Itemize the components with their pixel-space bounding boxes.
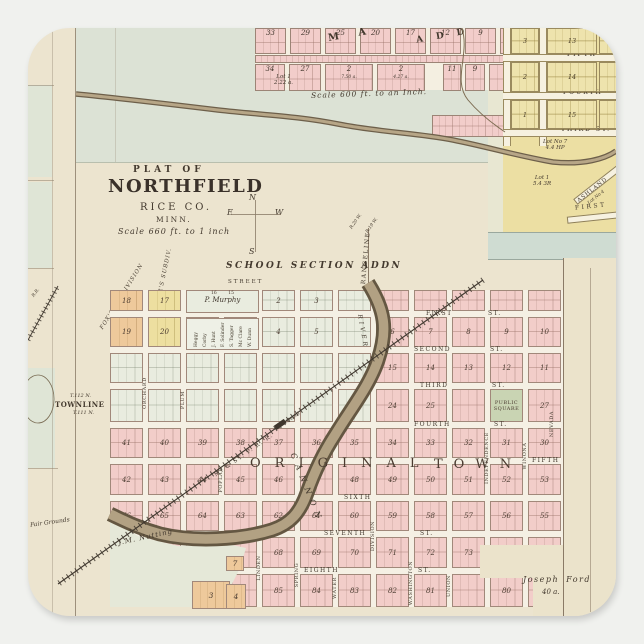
north-block: 9 xyxy=(465,64,485,91)
block-cell xyxy=(300,389,333,422)
compass-ns-line xyxy=(255,200,256,252)
owner-name: Corby xyxy=(203,333,208,347)
map-title: NORTHFIELD xyxy=(108,178,263,197)
east-plat: FIFTH FOURTH THIRD ST. Lot No 74.4 HP Lo… xyxy=(503,28,616,232)
owner-name: Heggy xyxy=(194,332,199,347)
north-plat-row1: 33292520171293 xyxy=(255,28,531,54)
block-cell: 55 xyxy=(528,501,561,531)
block-cell: 63 xyxy=(224,501,257,531)
block-cell: 4 xyxy=(262,317,295,347)
block-cell: 39 xyxy=(186,428,219,458)
product-photo: 33292520171293 342727.50 a.24.27 a.1192 … xyxy=(0,0,644,644)
block-cell xyxy=(338,290,371,311)
block-cell xyxy=(452,389,485,422)
east-block-partial xyxy=(599,100,616,129)
east-block-partial xyxy=(599,28,616,54)
left-field-3 xyxy=(28,368,55,468)
owner-name: S. Tagger xyxy=(230,325,235,347)
first-street-band xyxy=(567,211,616,223)
east-block-partial xyxy=(599,62,616,92)
block-cell: 3 xyxy=(300,290,333,311)
north-block: 27.50 a. xyxy=(325,64,373,91)
owner-name: J. Hunt xyxy=(212,331,217,347)
block-cell: 32 xyxy=(452,428,485,458)
field-line xyxy=(115,28,116,162)
block-cell xyxy=(300,353,333,383)
ford-acres-label: 40 a. xyxy=(542,589,560,596)
block-cell: 24 xyxy=(376,389,409,422)
block-cell: 33 xyxy=(414,428,447,458)
north-plat-row2: 342727.50 a.24.27 a.1192 xyxy=(255,64,531,91)
range-west-label: R.20 W. xyxy=(350,214,364,231)
street-label-orchard: ORCHARD xyxy=(142,377,148,409)
murphy-block: 16 15 P. Murphy xyxy=(186,290,259,313)
block-cell xyxy=(186,353,219,383)
east-block: 14 xyxy=(547,62,597,92)
block-cell: 69 xyxy=(300,537,333,568)
block-cell: 43 xyxy=(148,464,181,495)
block-cell: 6 xyxy=(376,317,409,347)
title-scale: Scale 660 ft. to 1 inch xyxy=(118,228,230,236)
block-cell xyxy=(224,389,257,422)
block-cell: 34 xyxy=(376,428,409,458)
east-lot-a: Lot No 74.4 HP xyxy=(543,140,567,152)
street-label-fourth: FOURTH xyxy=(414,421,451,428)
block-cell: 15 xyxy=(376,353,409,383)
east-block: 1 xyxy=(511,100,539,129)
street-label-division: DIVISION xyxy=(370,521,376,551)
street-label-seventh: SEVENTH xyxy=(324,530,366,537)
compass-ew-line xyxy=(231,214,281,215)
north-block: 27 xyxy=(289,64,321,91)
street-label-sixth: SIXTH xyxy=(344,494,372,501)
street-label-third: THIRD xyxy=(420,382,448,389)
block-cell xyxy=(338,353,371,383)
townline-label: TOWNLINE xyxy=(55,401,105,408)
compass-s: S xyxy=(249,248,254,256)
block-cell: 85 xyxy=(262,574,295,607)
block-cell: 19 xyxy=(110,317,143,347)
title-county: RICE CO. xyxy=(140,203,212,214)
north-plat-lot-label: Lot 12.22 a. xyxy=(274,75,293,87)
block-cell xyxy=(528,290,561,311)
block-cell: 62 xyxy=(262,501,295,531)
block-cell: 20 xyxy=(148,317,181,347)
block-cell: 53 xyxy=(528,464,561,495)
north-block: 33 xyxy=(255,28,286,54)
block-cell: 8 xyxy=(452,317,485,347)
block-cell: 41 xyxy=(110,428,143,458)
block-cell: 5 xyxy=(300,317,333,347)
north-plat-sublots xyxy=(255,55,521,63)
block-3-orange: 3 xyxy=(192,581,230,609)
range-east-label: R.19 W. xyxy=(366,218,380,235)
street-suffix: ST. xyxy=(420,530,434,537)
street-label-washington: WASHINGTON xyxy=(408,561,414,605)
block-cell: 14 xyxy=(414,353,447,383)
block-cell: 36 xyxy=(300,428,333,458)
block-cell xyxy=(224,353,257,383)
street-suffix: ST. xyxy=(492,382,506,389)
block-cell xyxy=(452,290,485,311)
east-block: 2 xyxy=(511,62,539,92)
east-block: 15 xyxy=(547,100,597,129)
block-cell: 11 xyxy=(528,353,561,383)
ford-label: Joseph Ford xyxy=(523,576,591,584)
block-cell: 7 xyxy=(414,317,447,347)
street-top-label: STREET xyxy=(228,280,263,286)
block-cell: 9 xyxy=(490,317,523,347)
block-cell: 84 xyxy=(300,574,333,607)
title-kicker: PLAT OF xyxy=(133,166,205,175)
block-cell xyxy=(262,353,295,383)
block-cell: 58 xyxy=(414,501,447,531)
block-cell: 44 xyxy=(186,464,219,495)
block-4-orange: 4 xyxy=(226,584,246,609)
street-label-water: WATER xyxy=(332,577,338,599)
east-block: 3 xyxy=(511,28,539,54)
street-label-winona: WINONA xyxy=(522,442,528,469)
block-cell: 56 xyxy=(490,501,523,531)
title-state: MINN. xyxy=(156,216,192,224)
street-label-eighth: EIGHTH xyxy=(304,567,339,574)
street-label-independence: INDEPENDENCE xyxy=(484,432,490,484)
owner-name: W. Dunn xyxy=(248,328,253,347)
block-cell: 57 xyxy=(452,501,485,531)
sheet-divider xyxy=(52,28,53,616)
block-cell: 71 xyxy=(376,537,409,568)
map-sticker: 33292520171293 342727.50 a.24.27 a.1192 … xyxy=(28,28,616,616)
block-cell xyxy=(452,574,485,607)
street-label-poplar: POPLAR xyxy=(218,467,224,492)
block-7-orange: 7 xyxy=(226,556,244,571)
section-line xyxy=(590,268,591,612)
north-block: 29 xyxy=(290,28,321,54)
block-cell: 17 xyxy=(148,290,181,311)
block-cell: 72 xyxy=(414,537,447,568)
block-cell: 18 xyxy=(110,290,143,311)
block-cell xyxy=(186,537,219,568)
block-cell: 2 xyxy=(262,290,295,311)
block-cell: 10 xyxy=(528,317,561,347)
block-cell xyxy=(148,537,181,568)
street-suffix: ST. xyxy=(418,567,432,574)
field-line xyxy=(28,85,54,86)
street-label-spring: SPRING xyxy=(294,563,300,588)
owner-name: Mc Clare xyxy=(239,326,244,347)
block-cell: 42 xyxy=(110,464,143,495)
street-label-plum: PLUM xyxy=(180,391,186,409)
owner-name: F. Solinder xyxy=(221,322,226,347)
east-block: 13 xyxy=(547,28,597,54)
block-cell xyxy=(110,353,143,383)
block-cell: 30 xyxy=(528,428,561,458)
block-cell: 64 xyxy=(186,501,219,531)
original-town-letters-a: ORIGINAL xyxy=(250,457,433,471)
block-cell xyxy=(110,574,143,607)
block-cell xyxy=(148,574,181,607)
block-cell xyxy=(148,389,181,422)
water-band xyxy=(488,232,616,260)
block-cell: 31 xyxy=(490,428,523,458)
townline-south-label: T.111 N. xyxy=(73,411,94,416)
street-suffix: ST. xyxy=(494,421,508,428)
left-strip-rr-label: R.R. xyxy=(32,288,42,299)
street-label-second: SECOND xyxy=(414,346,451,353)
block-cell: 60 xyxy=(338,501,371,531)
street-suffix: ST. xyxy=(490,346,504,353)
east-street-first: FIRST xyxy=(575,202,607,212)
field-line xyxy=(28,180,54,181)
block-cell: 70 xyxy=(338,537,371,568)
block-cell xyxy=(338,389,371,422)
block-cell xyxy=(490,290,523,311)
east-plat-street-h1 xyxy=(503,54,616,62)
block-cell: 40 xyxy=(148,428,181,458)
block-cell xyxy=(148,353,181,383)
owner-lots-strip: HeggyCorbyJ. HuntF. SolinderS. TaggerMc … xyxy=(186,318,259,350)
block-cell: 35 xyxy=(338,428,371,458)
block-cell: 59 xyxy=(376,501,409,531)
block-cell: 25 xyxy=(414,389,447,422)
field-line xyxy=(28,268,54,269)
street-label-fifth: FIFTH xyxy=(532,457,559,464)
block-cell: 65 xyxy=(148,501,181,531)
block-cell: 12 xyxy=(490,353,523,383)
block-cell xyxy=(110,389,143,422)
left-field-2 xyxy=(28,182,52,268)
street-suffix: ST. xyxy=(488,310,502,317)
original-town-letters-b: TOWN xyxy=(434,458,522,472)
north-block: 11 xyxy=(443,64,461,91)
street-label-first: FIRST xyxy=(426,310,453,317)
block-cell: 81 xyxy=(414,574,447,607)
left-field-1 xyxy=(28,85,52,177)
street-label-union: UNION xyxy=(446,575,452,597)
block-cell: 27 xyxy=(528,389,561,422)
block-cell: 83 xyxy=(338,574,371,607)
public-square: PUBLIC SQUARE xyxy=(490,389,523,422)
murphy-owner-label: P. Murphy xyxy=(187,296,258,304)
block-cell: 68 xyxy=(262,537,295,568)
block-cell: 82 xyxy=(376,574,409,607)
block-cell: 66 xyxy=(110,501,143,531)
east-lot-b: Lot 15.4 3R xyxy=(533,176,551,188)
block-cell xyxy=(186,389,219,422)
townline-north-label: T.112 N. xyxy=(70,394,91,399)
field-line xyxy=(28,468,58,469)
street-label-nevada: NEVADA xyxy=(549,411,555,437)
block-cell xyxy=(414,290,447,311)
rangeline-label: RANGELINE xyxy=(361,231,372,284)
street-label-linden: LINDEN xyxy=(256,555,262,580)
school-section-label: SCHOOL SECTION ADDN xyxy=(226,262,402,271)
north-plat-grid: 33292520171293 342727.50 a.24.27 a.1192 xyxy=(255,28,521,90)
block-cell xyxy=(376,290,409,311)
fair-grounds-label: Fair Grounds xyxy=(30,517,70,529)
block-cell: 13 xyxy=(452,353,485,383)
block-cell: 80 xyxy=(490,574,523,607)
